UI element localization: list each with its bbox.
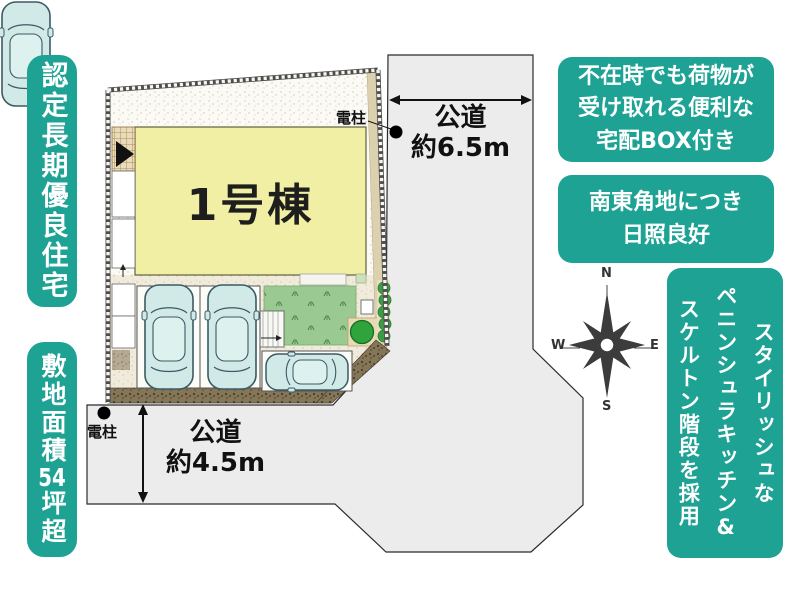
compass-west-label: W [551,338,565,353]
utility-pole-label: 電柱 [336,107,366,128]
feature-box-interior-text: スタイリッシュな ペニンシュラキッチン& スケルトン階段を採用 [669,285,781,541]
road-width-value: 約4.5m [138,449,293,479]
compass-north-label: N [601,266,612,281]
feature-box-delivery: 不在時でも荷物が 受け取れる便利な 宅配BOX付き [558,57,774,162]
road-east-label: 公道 約6.5m [393,104,528,164]
feature-box-corner-lot-text: 南東角地につき 日照良好 [589,186,743,252]
car [266,352,348,392]
road-south-label: 公道 約4.5m [138,419,293,479]
compass-east-label: E [650,338,659,353]
utility-pole-label: 電柱 [87,421,117,442]
delivery-box-icon [361,300,373,314]
feature-box-delivery-text: 不在時でも荷物が 受け取れる便利な 宅配BOX付き [578,61,754,159]
feature-box-corner-lot: 南東角地につき 日照良好 [558,175,774,263]
feature-box-interior: スタイリッシュな ペニンシュラキッチン& スケルトン階段を採用 [667,268,783,558]
road-name: 公道 [138,419,293,449]
compass-icon [559,285,655,398]
compass-south-label: S [602,399,611,414]
tree-icon [351,321,374,344]
road-name: 公道 [393,104,528,134]
side-approach-boxes [112,171,135,348]
road-width-value: 約6.5m [393,134,528,164]
page: 1号棟 公道 約6.5m 公道 約4.5m 電柱 電柱 認定長期優良住宅 敷地面… [0,0,800,600]
badge-land-area-text1: 敷地面積 [34,353,70,465]
gravel-pad [112,350,130,370]
utility-pole-dot [98,407,111,420]
terrace-pad [300,274,346,285]
badge-land-area-number: 54 [38,465,67,490]
planter-pad [356,274,366,283]
badge-land-area-text2: 坪超 [34,490,70,546]
stairs [258,311,284,347]
building-label: 1号棟 [135,127,366,275]
badge-land-area: 敷地面積54坪超 [27,342,77,557]
badge-certified-housing: 認定長期優良住宅 [27,55,77,307]
